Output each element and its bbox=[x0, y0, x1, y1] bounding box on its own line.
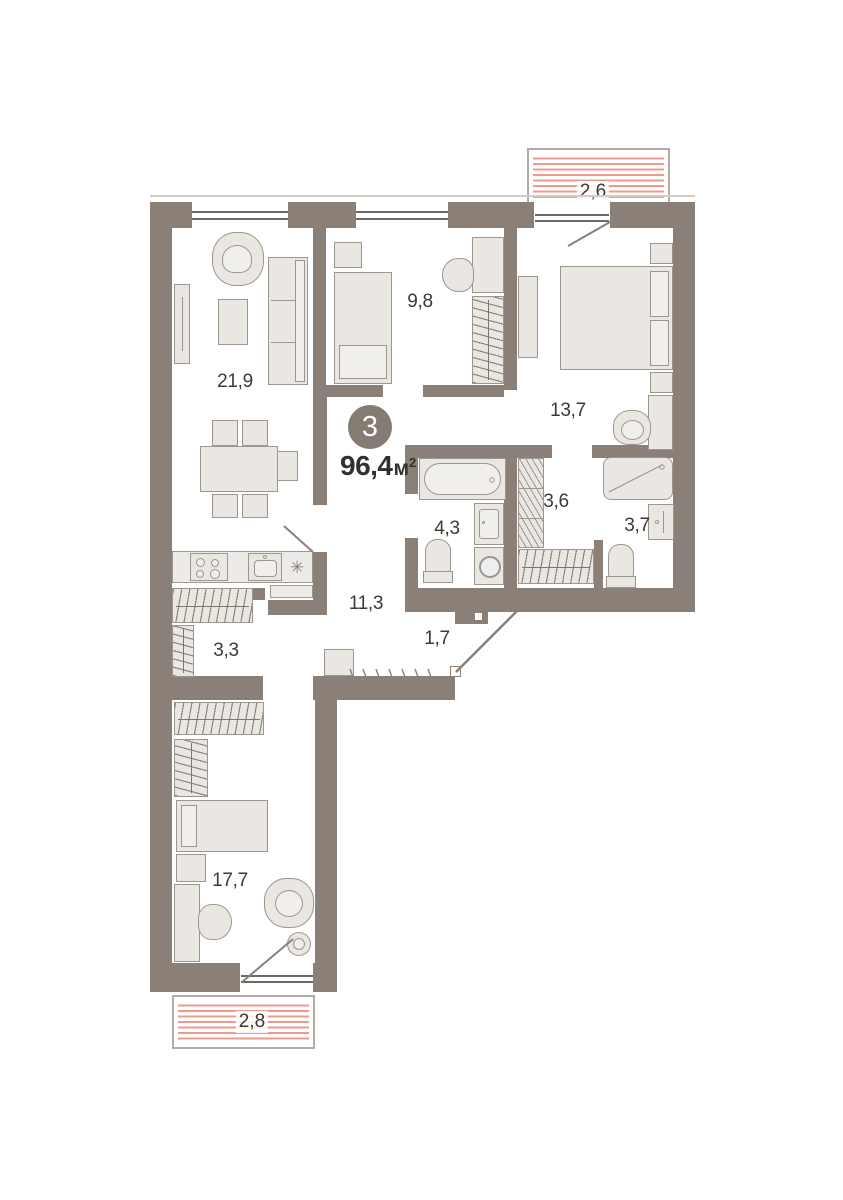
balcony-top-label: 2,6 bbox=[577, 181, 609, 203]
dining-chair bbox=[242, 420, 268, 446]
room-label-shower-room: 3,7 bbox=[624, 515, 650, 537]
sink-basin bbox=[254, 560, 277, 577]
entry-cabinet bbox=[324, 649, 354, 676]
wardrobe-storage-top bbox=[172, 588, 253, 623]
floor-plan: 2,6 2,8 bbox=[0, 0, 843, 1200]
armchair-living bbox=[212, 232, 264, 286]
fridge-icon: ✳ bbox=[290, 558, 304, 578]
toilet-tank bbox=[606, 576, 636, 588]
chair-master-seat bbox=[621, 420, 644, 440]
wardrobe-storage-left bbox=[172, 625, 194, 677]
total-area: 96,4м2 bbox=[340, 450, 416, 482]
bath-sink-basin bbox=[479, 509, 499, 539]
wall-top-3 bbox=[448, 202, 534, 228]
wardrobe-rail bbox=[191, 743, 192, 793]
kitchen-cabinet bbox=[270, 585, 313, 598]
bed-pillow bbox=[181, 805, 197, 847]
wardrobe-rail bbox=[178, 719, 260, 720]
dresser-bottom bbox=[176, 854, 206, 882]
wardrobe-rail bbox=[522, 567, 590, 568]
wall-top-2 bbox=[288, 202, 356, 228]
balcony-door-bottom bbox=[240, 963, 315, 992]
room-label-hallway: 11,3 bbox=[349, 593, 383, 615]
wall-bedroom-small-bottom-w bbox=[313, 385, 383, 397]
bed-pillow bbox=[650, 271, 669, 317]
desk-chair-small-room bbox=[442, 258, 474, 292]
stove bbox=[190, 553, 228, 581]
door-hinge-plate bbox=[474, 612, 483, 621]
room-label-living: 21,9 bbox=[217, 371, 253, 393]
total-area-unit: м bbox=[394, 457, 410, 480]
burner bbox=[211, 559, 219, 567]
wall-hall-upper bbox=[313, 397, 327, 505]
wardrobe-master-right bbox=[648, 395, 673, 450]
wall-entry-bottom bbox=[313, 676, 455, 700]
dining-chair bbox=[242, 494, 268, 518]
burner bbox=[210, 569, 220, 579]
room-label-bedroom-small: 9,8 bbox=[407, 291, 433, 313]
desk-small-room bbox=[472, 237, 504, 293]
wall-left bbox=[150, 202, 172, 992]
closet-wardrobe bbox=[518, 549, 594, 584]
wall-right bbox=[673, 202, 695, 612]
desk-bottom-room bbox=[174, 884, 200, 962]
wall-bottom-e bbox=[313, 963, 337, 992]
bathtub-basin bbox=[424, 463, 501, 495]
faucet bbox=[655, 520, 659, 524]
room-label-walkin-closet: 3,6 bbox=[543, 491, 569, 513]
dining-chair-end bbox=[277, 451, 298, 481]
desk-chair-bottom-room bbox=[198, 904, 232, 940]
total-area-sup: 2 bbox=[409, 455, 416, 470]
bed-single-bottom bbox=[176, 800, 268, 852]
wardrobe-rail bbox=[176, 606, 249, 607]
window-living bbox=[192, 202, 288, 228]
sofa-cushion-line bbox=[271, 300, 296, 301]
sofa-cushion-line bbox=[271, 342, 296, 343]
armchair-seat bbox=[275, 890, 303, 917]
facade-line bbox=[150, 195, 695, 197]
window-bedroom-small bbox=[356, 202, 448, 228]
side-table-inner bbox=[293, 938, 305, 950]
shower-sink bbox=[648, 504, 674, 540]
chair-master bbox=[613, 410, 651, 445]
bed-pillow bbox=[650, 320, 669, 366]
closet-shelves bbox=[518, 458, 544, 548]
balcony-door-top bbox=[534, 202, 610, 228]
tv-screen-line bbox=[182, 297, 183, 351]
wall-closet-shower-stub bbox=[594, 540, 603, 588]
wall-bedrooms bbox=[504, 228, 517, 390]
door-hinge-plate bbox=[450, 666, 461, 677]
wardrobe-master-left bbox=[518, 276, 538, 358]
wall-storage-stub bbox=[253, 588, 265, 600]
wardrobe-rail bbox=[183, 629, 184, 673]
faucet bbox=[482, 521, 485, 524]
wall-bath-block-bottom bbox=[405, 588, 695, 612]
wardrobe-bottom-left bbox=[174, 739, 208, 797]
burner bbox=[196, 570, 204, 578]
balcony-bottom-label: 2,8 bbox=[236, 1011, 268, 1033]
room-label-bedroom-master: 13,7 bbox=[550, 400, 586, 422]
rooms-count-badge: 3 bbox=[348, 405, 392, 449]
toilet-tank bbox=[423, 571, 453, 583]
shelf-divider bbox=[519, 518, 543, 519]
nightstand-master-top bbox=[650, 243, 673, 264]
armchair-living-seat bbox=[222, 245, 252, 273]
wall-entry-bump bbox=[455, 612, 488, 624]
tv-unit bbox=[174, 284, 190, 364]
sink-line bbox=[663, 511, 664, 533]
toilet-shower-room bbox=[608, 544, 634, 578]
shower-tray bbox=[603, 457, 673, 500]
side-table-round bbox=[287, 932, 311, 956]
armchair-bottom-room bbox=[264, 878, 314, 928]
coffee-table bbox=[218, 299, 248, 345]
bath-sink bbox=[474, 503, 504, 545]
room-label-bedroom-bottom: 17,7 bbox=[212, 870, 248, 892]
bed-single-top bbox=[334, 272, 392, 384]
wall-hall-lower bbox=[313, 552, 327, 607]
room-label-storage: 3,3 bbox=[213, 640, 239, 662]
rooms-count: 3 bbox=[362, 411, 378, 444]
washing-machine bbox=[474, 547, 504, 585]
wall-bath-top bbox=[405, 445, 552, 458]
wall-storage-bottom bbox=[150, 676, 263, 700]
faucet bbox=[263, 555, 267, 559]
wall-bath-left-lower bbox=[405, 538, 418, 588]
dining-chair bbox=[212, 494, 238, 518]
sofa bbox=[268, 257, 308, 385]
wardrobe-small-room bbox=[472, 296, 504, 384]
bed-pillow bbox=[339, 345, 387, 379]
total-area-value: 96,4 bbox=[340, 450, 393, 481]
wall-bedroom-small-bottom-e bbox=[423, 385, 504, 397]
wall-wing-right bbox=[315, 700, 337, 992]
wall-bottom-w bbox=[150, 963, 240, 992]
toilet-bath bbox=[425, 539, 451, 573]
wall-kitchen-return bbox=[268, 600, 327, 615]
room-label-bathroom: 4,3 bbox=[434, 518, 460, 540]
burner bbox=[196, 558, 205, 567]
sofa-backrest bbox=[295, 260, 305, 382]
shelf-divider bbox=[519, 488, 543, 489]
bathtub bbox=[419, 458, 506, 500]
nightstand-small bbox=[334, 242, 362, 268]
nightstand-master-bottom bbox=[650, 372, 673, 393]
kitchen-sink bbox=[248, 553, 282, 581]
dining-table bbox=[200, 446, 278, 492]
wardrobe-bottom-top bbox=[174, 702, 264, 735]
room-label-entry: 1,7 bbox=[424, 628, 450, 650]
washer-drum bbox=[479, 556, 501, 578]
dining-chair bbox=[212, 420, 238, 446]
bed-double bbox=[560, 266, 673, 370]
wardrobe-rail bbox=[488, 300, 489, 380]
wall-living-bedroom-small bbox=[313, 228, 326, 385]
